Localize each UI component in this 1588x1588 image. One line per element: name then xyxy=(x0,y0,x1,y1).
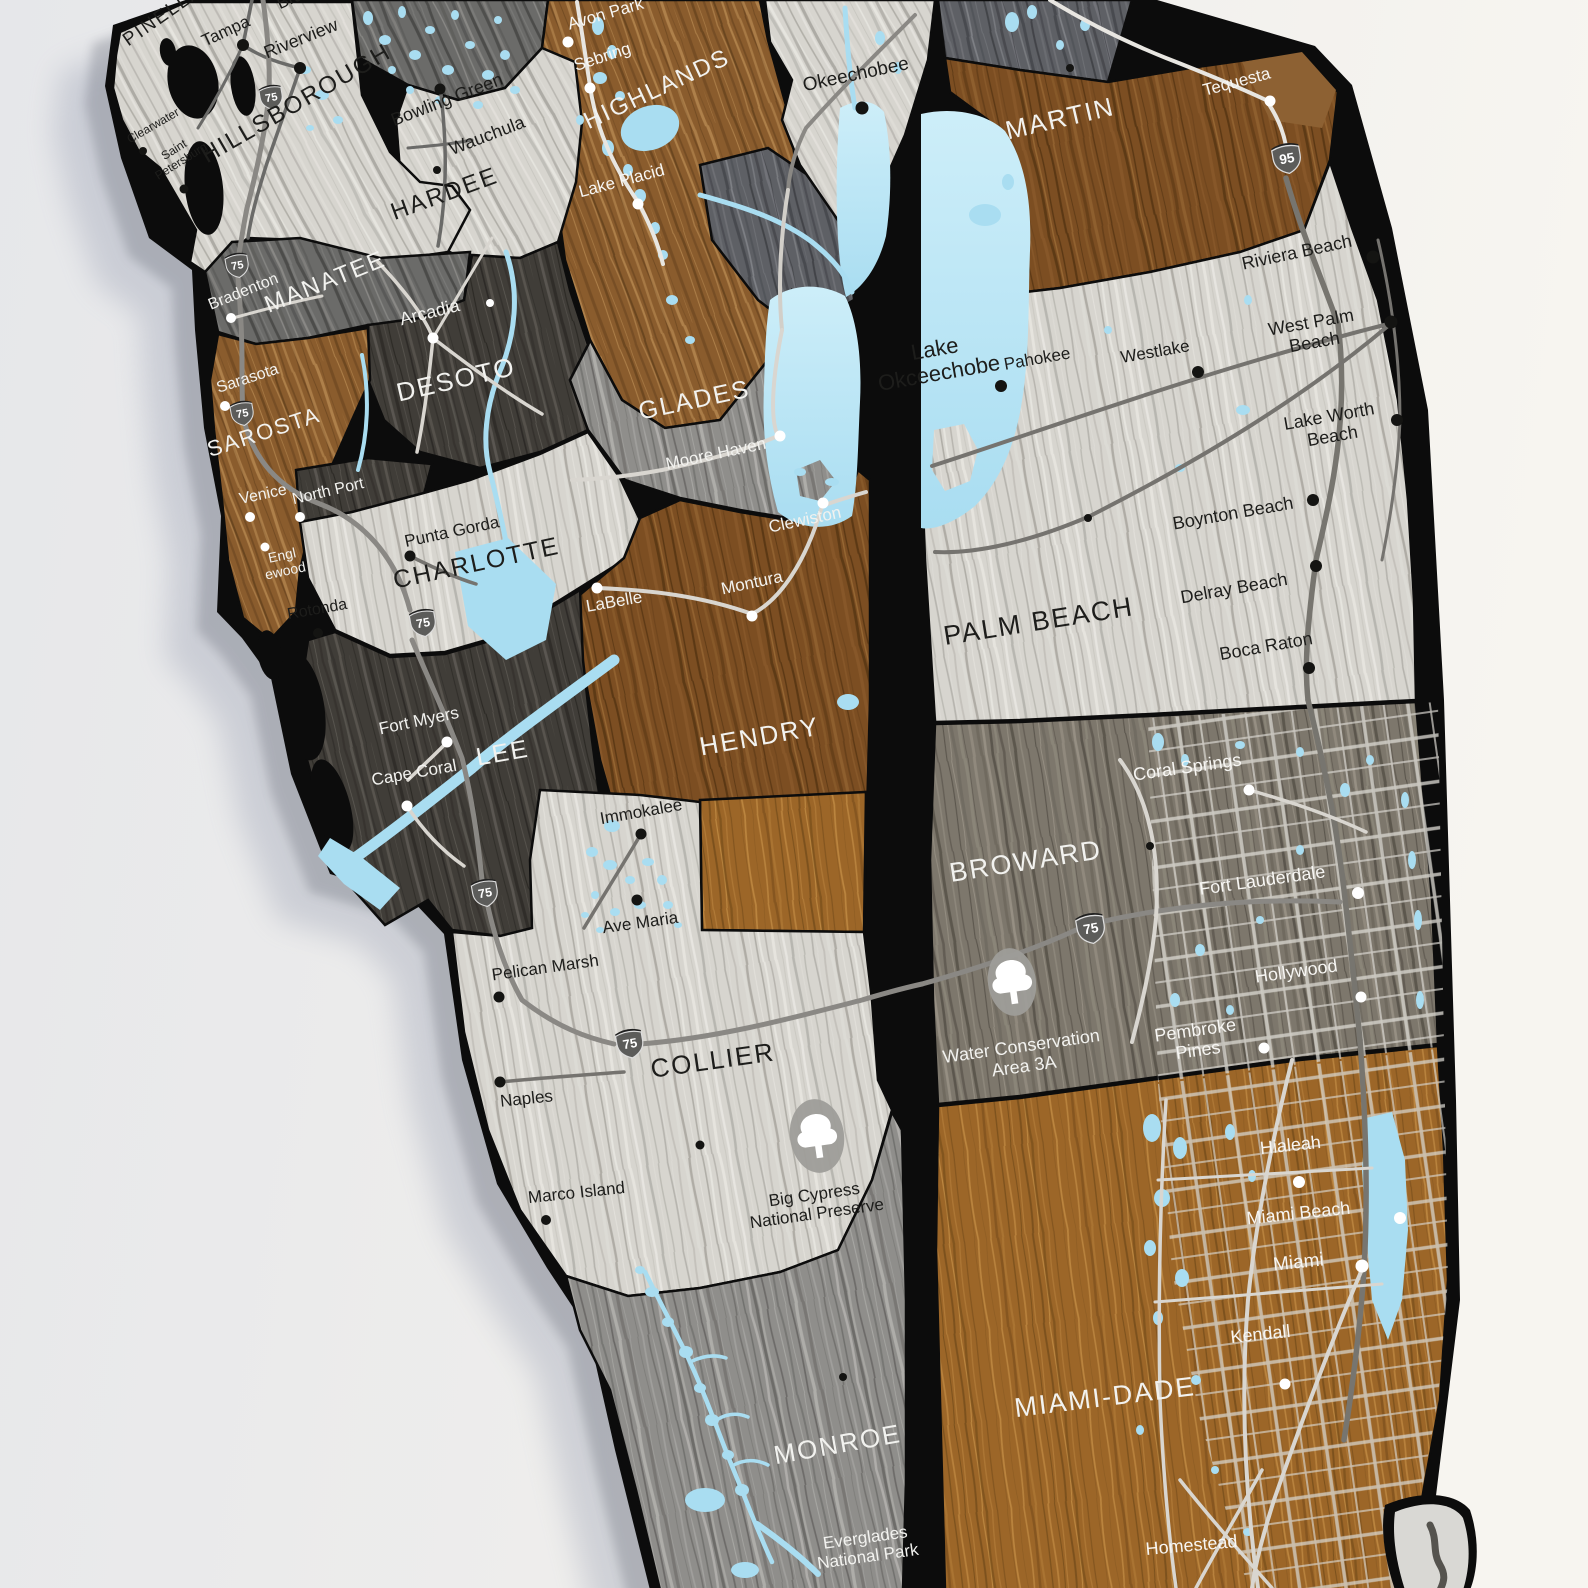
shield-number: 75 xyxy=(415,615,431,631)
city-dot-lake-placid xyxy=(633,199,644,210)
city-dot-immokalee xyxy=(636,829,647,840)
city-dot-venice xyxy=(245,512,255,522)
city-dot-marco-island xyxy=(541,1215,551,1225)
town-dot xyxy=(486,299,494,307)
city-dot-fort-myers xyxy=(442,737,453,748)
city-dot-wauchula xyxy=(433,166,441,174)
small-lake xyxy=(969,204,1001,226)
small-lake xyxy=(1340,783,1350,797)
city-dot-tequesta xyxy=(1265,96,1276,107)
city-dot-sarasota-city xyxy=(220,401,230,411)
small-lake xyxy=(1296,845,1304,855)
small-lake xyxy=(363,11,373,25)
florida-3d-wood-map: 7575757575757595PINELLASHILLSBOROUGHHARD… xyxy=(0,0,1588,1588)
small-lake xyxy=(1136,1425,1144,1435)
city-dot-labelle xyxy=(592,583,603,594)
city-dot-hialeah xyxy=(1293,1176,1305,1188)
city-dot-punta-gorda xyxy=(405,551,416,562)
shield-number: 75 xyxy=(235,407,249,421)
city-dot-ave-maria xyxy=(632,895,643,906)
shield-number: 75 xyxy=(230,259,244,273)
city-dot-moore-haven xyxy=(775,431,786,442)
city-dot-naples xyxy=(495,1077,506,1088)
small-lake xyxy=(1236,405,1250,415)
small-lake xyxy=(662,1317,674,1327)
city-dot-lake-worth-beach xyxy=(1391,414,1403,426)
city-dot-bradenton xyxy=(226,313,236,323)
city-dot-delray-beach xyxy=(1310,560,1322,572)
small-lake xyxy=(593,72,607,84)
small-lake xyxy=(1005,12,1019,32)
city-dot-north-port xyxy=(295,512,305,522)
town-dot xyxy=(1084,514,1092,522)
town-dot xyxy=(1066,64,1074,72)
city-dot-pelican-marsh xyxy=(494,992,505,1003)
small-lake xyxy=(705,1414,719,1426)
small-lake xyxy=(1416,991,1424,1009)
small-lake xyxy=(425,26,435,34)
small-lake xyxy=(735,1484,749,1496)
city-dot-hollywood xyxy=(1356,992,1367,1003)
small-lake xyxy=(494,16,502,24)
small-lake xyxy=(473,101,483,109)
city-dot-clearwater xyxy=(139,147,147,155)
wood-map-wall-photo: 7575757575757595PINELLASHILLSBOROUGHHARD… xyxy=(0,0,1588,1588)
small-lake xyxy=(586,847,598,857)
small-lake xyxy=(500,50,510,60)
small-lake xyxy=(1056,40,1064,50)
small-lake xyxy=(1143,1114,1161,1142)
shield-number: 75 xyxy=(1082,920,1100,937)
small-lake xyxy=(465,41,475,49)
small-lake xyxy=(1225,1124,1235,1140)
small-lake xyxy=(1002,174,1014,190)
small-lake xyxy=(685,336,695,344)
small-lake xyxy=(1244,295,1252,305)
city-dot-riverview xyxy=(294,62,306,74)
small-lake xyxy=(451,10,459,20)
small-lake xyxy=(409,50,421,60)
town-dot xyxy=(696,1141,705,1150)
small-lake xyxy=(591,891,599,899)
small-lake xyxy=(1104,326,1112,334)
small-lake xyxy=(642,858,654,866)
small-lake xyxy=(694,1383,706,1393)
small-lake xyxy=(875,31,885,45)
small-lake xyxy=(603,860,617,870)
city-dot-westlake xyxy=(1192,366,1204,378)
small-lake xyxy=(1401,792,1409,808)
small-lake xyxy=(1173,1137,1187,1159)
small-lake xyxy=(1366,755,1374,765)
small-lake xyxy=(1175,1269,1189,1287)
small-lake xyxy=(1226,1005,1234,1015)
small-lake xyxy=(666,295,678,305)
city-dot-boca-raton xyxy=(1303,662,1315,674)
small-lake xyxy=(1170,993,1180,1007)
small-lake xyxy=(825,478,839,486)
city-dot-fort-lauderdale xyxy=(1352,887,1364,899)
small-lake xyxy=(722,1450,734,1460)
small-lake xyxy=(306,125,314,131)
city-dot-coral-springs xyxy=(1244,785,1255,796)
piece-hendry-south xyxy=(700,792,866,932)
city-dot-kendall xyxy=(1280,1379,1291,1390)
small-lake xyxy=(1152,733,1164,751)
small-lake xyxy=(510,86,520,94)
city-dot-okeechobee xyxy=(856,102,869,115)
small-lake xyxy=(333,116,343,124)
city-dot-miami xyxy=(1356,1260,1369,1273)
small-lake xyxy=(635,1266,645,1274)
town-dot xyxy=(839,1373,847,1381)
shield-number: 75 xyxy=(477,885,493,901)
city-dot-miami-beach xyxy=(1394,1212,1406,1224)
small-lake xyxy=(679,1346,693,1358)
small-lake xyxy=(657,875,667,885)
small-lake xyxy=(442,65,454,75)
small-lake xyxy=(731,1562,759,1578)
city-dot-west-palm-beach xyxy=(1385,316,1398,329)
city-dot-tampa xyxy=(237,39,249,51)
small-lake xyxy=(1235,741,1245,749)
small-lake xyxy=(1027,5,1037,19)
small-lake xyxy=(1414,910,1422,930)
keys-accessory-piece xyxy=(1394,1504,1469,1588)
town-dot xyxy=(1146,842,1154,850)
city-dot-saint-petersburg xyxy=(180,185,189,194)
city-dot-pembroke-pines xyxy=(1259,1043,1270,1054)
small-lake xyxy=(581,912,589,918)
city-dot-montura xyxy=(747,611,758,622)
small-lake xyxy=(1195,944,1205,956)
small-lake xyxy=(398,6,406,18)
city-dot-cape-coral xyxy=(402,801,413,812)
small-lake xyxy=(685,1488,725,1512)
small-lake xyxy=(837,694,859,710)
small-lake xyxy=(794,468,806,476)
city-dot-rotonda xyxy=(313,628,323,638)
small-lake xyxy=(406,86,414,94)
small-lake xyxy=(1211,1466,1219,1474)
small-lake xyxy=(1296,747,1304,757)
city-dot-arcadia xyxy=(428,333,439,344)
small-lake xyxy=(1408,851,1416,869)
shield-number: 95 xyxy=(1278,150,1296,167)
city-dot-boynton-beach xyxy=(1307,494,1319,506)
city-dot-sebring xyxy=(585,83,596,94)
city-dot-pahokee xyxy=(995,380,1007,392)
small-lake xyxy=(388,66,396,74)
city-dot-riviera-beach xyxy=(1367,251,1380,264)
small-lake xyxy=(1144,1240,1156,1256)
city-dot-avon-park xyxy=(563,37,574,48)
small-lake xyxy=(645,1287,659,1297)
small-lake xyxy=(610,908,620,916)
shield-number: 75 xyxy=(622,1035,639,1052)
small-lake xyxy=(1256,916,1264,924)
small-lake xyxy=(625,876,635,884)
